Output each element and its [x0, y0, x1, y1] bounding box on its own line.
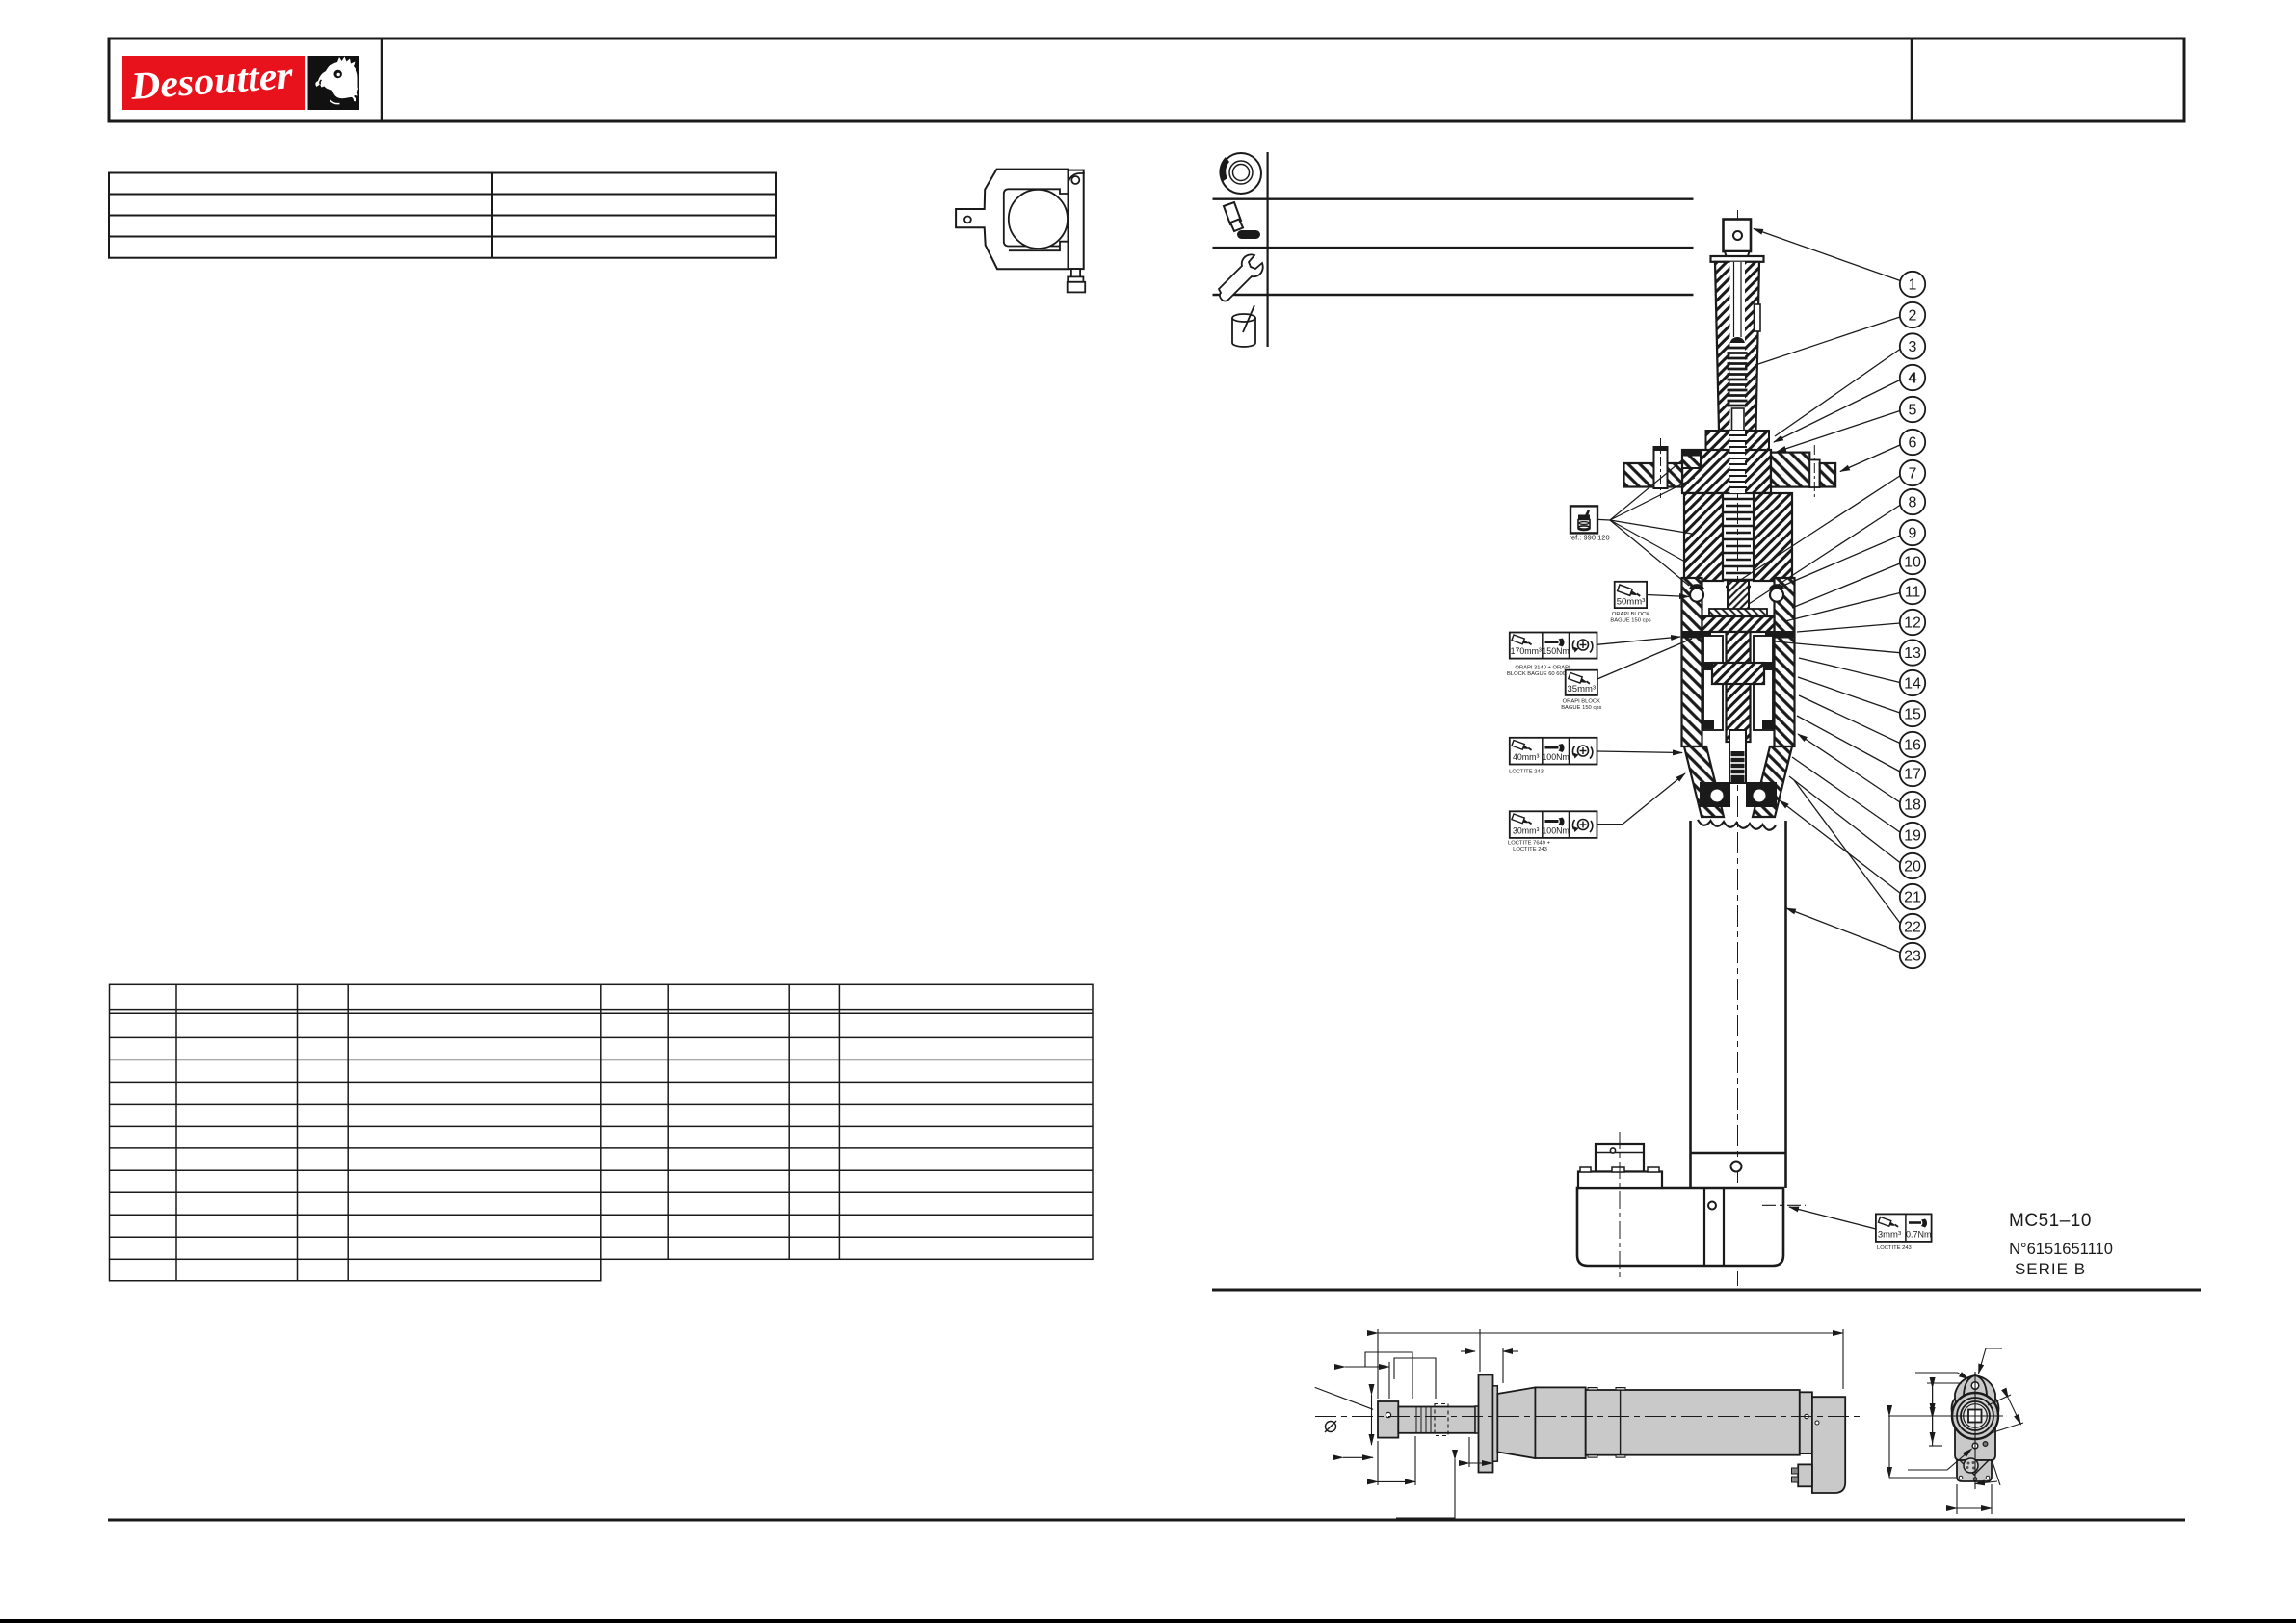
- svg-text:ref.: 990 120: ref.: 990 120: [1570, 534, 1610, 542]
- svg-text:2: 2: [1909, 308, 1917, 325]
- svg-text:21: 21: [1904, 890, 1921, 906]
- svg-text:40mm³: 40mm³: [1513, 752, 1539, 762]
- svg-text:BAGUE 150 cps: BAGUE 150 cps: [1561, 705, 1601, 711]
- svg-text:11: 11: [1905, 585, 1921, 601]
- svg-text:6: 6: [1909, 435, 1917, 452]
- svg-text:ORAPI BLOCK: ORAPI BLOCK: [1612, 612, 1649, 617]
- svg-text:SERIE B: SERIE B: [2015, 1260, 2086, 1278]
- svg-text:50mm³: 50mm³: [1617, 597, 1646, 608]
- svg-text:LOCTITE 7649 +: LOCTITE 7649 +: [1508, 841, 1551, 847]
- svg-text:100Nm: 100Nm: [1542, 826, 1569, 836]
- svg-text:10: 10: [1904, 555, 1921, 571]
- svg-text:LOCTITE 243: LOCTITE 243: [1877, 1245, 1912, 1251]
- svg-text:18: 18: [1904, 798, 1921, 814]
- svg-text:150Nm: 150Nm: [1542, 646, 1569, 656]
- svg-text:12: 12: [1904, 615, 1921, 632]
- svg-text:22: 22: [1904, 920, 1921, 936]
- svg-text:ORAPI BLOCK: ORAPI BLOCK: [1563, 699, 1600, 705]
- svg-text:15: 15: [1904, 707, 1921, 723]
- svg-text:BAGUE 150 cps: BAGUE 150 cps: [1610, 618, 1650, 624]
- svg-text:170mm³: 170mm³: [1511, 646, 1542, 656]
- svg-text:9: 9: [1909, 526, 1917, 542]
- svg-text:100Nm: 100Nm: [1542, 752, 1569, 762]
- svg-text:23: 23: [1904, 949, 1921, 965]
- svg-text:LOCTITE 243: LOCTITE 243: [1509, 770, 1544, 775]
- svg-text:5: 5: [1909, 403, 1917, 419]
- svg-text:19: 19: [1904, 828, 1921, 845]
- svg-text:LOCTITE 243: LOCTITE 243: [1513, 847, 1547, 852]
- svg-text:17: 17: [1904, 767, 1921, 783]
- svg-text:35mm³: 35mm³: [1568, 684, 1597, 694]
- svg-text:3mm³: 3mm³: [1878, 1230, 1901, 1241]
- svg-text:N°6151651110: N°6151651110: [2009, 1241, 2113, 1258]
- svg-text:16: 16: [1904, 738, 1921, 754]
- svg-text:7: 7: [1909, 466, 1917, 483]
- svg-text:30mm³: 30mm³: [1513, 826, 1539, 836]
- svg-text:BLOCK BAGUE 60 600cps: BLOCK BAGUE 60 600cps: [1507, 671, 1574, 677]
- svg-text:8: 8: [1909, 495, 1917, 511]
- svg-text:4: 4: [1909, 371, 1917, 387]
- svg-text:1: 1: [1909, 277, 1917, 294]
- svg-text:3: 3: [1909, 339, 1917, 355]
- svg-text:14: 14: [1904, 676, 1921, 693]
- svg-text:ORAPI 3140 + ORAPI: ORAPI 3140 + ORAPI: [1515, 666, 1570, 671]
- svg-text:13: 13: [1904, 645, 1921, 662]
- svg-text:20: 20: [1904, 859, 1921, 876]
- svg-text:MC51–10: MC51–10: [2009, 1211, 2092, 1231]
- svg-text:0.7Nm: 0.7Nm: [1906, 1230, 1932, 1240]
